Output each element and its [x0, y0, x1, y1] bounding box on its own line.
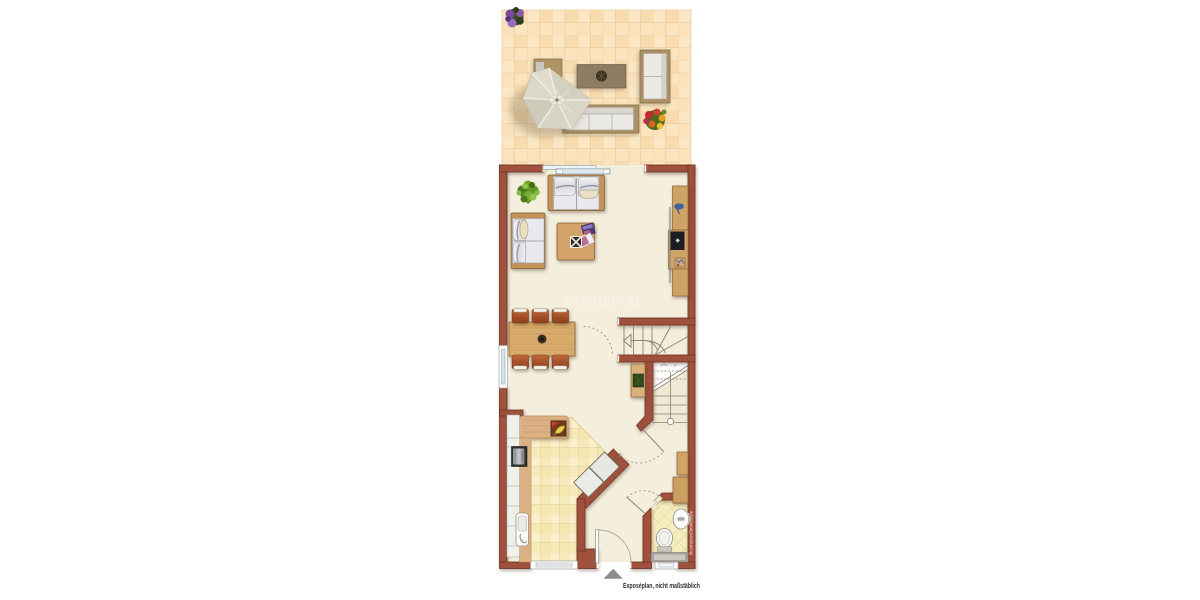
svg-text:Illustration©immostyle: Illustration©immostyle	[688, 510, 694, 555]
svg-text:Exposéplan, nicht maßstäblich: Exposéplan, nicht maßstäblich	[623, 581, 700, 590]
svg-text:CENTURY 21: CENTURY 21	[564, 295, 641, 309]
